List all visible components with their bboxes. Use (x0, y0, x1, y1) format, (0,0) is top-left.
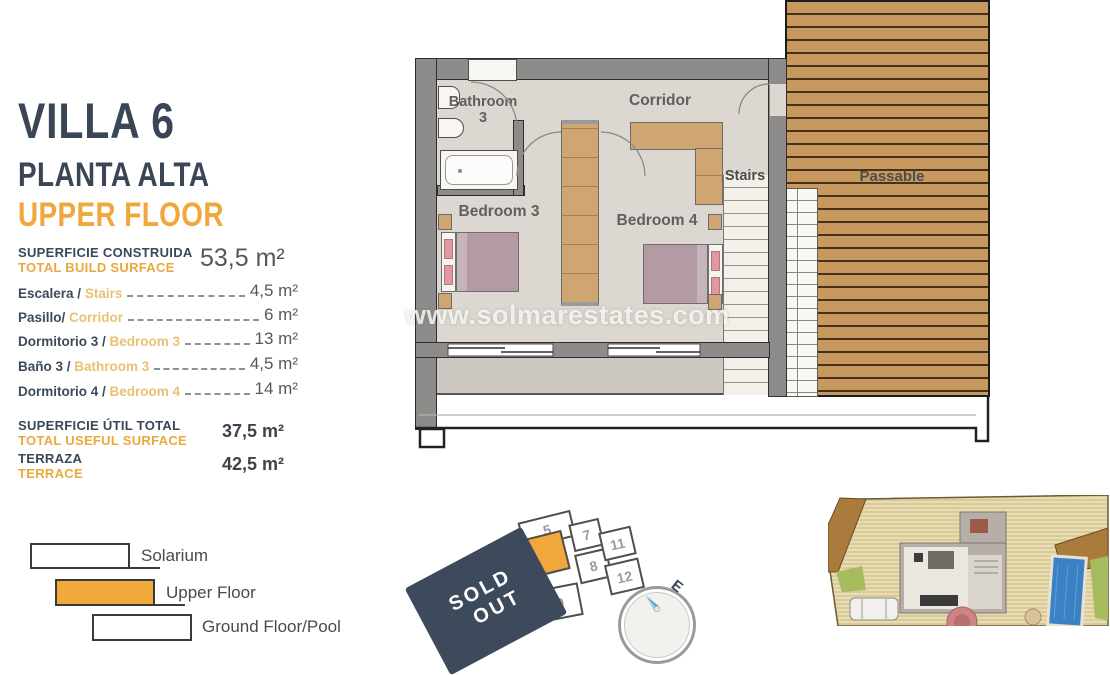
room-label-es: Escalera / (18, 286, 85, 301)
lower-terrace-strip (437, 358, 770, 395)
nightstand (708, 214, 722, 230)
terrace-header: TERRAZA TERRACE (18, 452, 218, 481)
room-label-en: Bedroom 3 (110, 334, 181, 349)
bathtub (440, 150, 518, 190)
parasol (1025, 609, 1041, 625)
bathroom-label-line2: 3 (443, 111, 523, 127)
bed-mattress (643, 244, 708, 304)
legend-label-ground-floor: Ground Floor/Pool (202, 617, 341, 637)
room-label-es: Dormitorio 4 / (18, 384, 110, 399)
useful-label-es: SUPERFICIE ÚTIL TOTAL (18, 419, 218, 434)
legend-swatch-ground-floor (92, 614, 192, 641)
outer-boundary (415, 397, 988, 441)
bed-fold (697, 245, 707, 303)
room-label-en: Corridor (69, 310, 123, 325)
room-label-bedroom3: Bedroom 3 (447, 203, 551, 220)
build-surface-label-es: SUPERFICIE CONSTRUIDA (18, 245, 208, 260)
villa-title: VILLA 6 (18, 92, 175, 150)
room-value: 14 m² (255, 379, 298, 399)
room-row-bedroom4: Dormitorio 4 / Bedroom 4 14 m² (18, 379, 298, 399)
floor-subtitle-es: PLANTA ALTA (18, 156, 209, 195)
room-label-en: Bathroom 3 (74, 359, 149, 374)
legend-swatch-upper-floor (55, 579, 155, 606)
boundary-corner-box (420, 429, 444, 447)
build-surface-label-en: TOTAL BUILD SURFACE (18, 260, 208, 275)
plot-cell-11: 11 (598, 526, 637, 562)
pillow (444, 265, 453, 285)
room-label-bedroom4: Bedroom 4 (605, 212, 709, 229)
wall-left (415, 58, 437, 430)
room-row-bedroom3: Dormitorio 3 / Bedroom 3 13 m² (18, 329, 298, 349)
wardrobe-middle (561, 120, 599, 306)
wardrobe-l-top (630, 122, 723, 150)
bed-fold (457, 233, 467, 291)
dotted-leader (185, 343, 250, 345)
watermark: www.solmarestates.com (405, 300, 805, 331)
floor-subtitle-en: UPPER FLOOR (18, 196, 224, 235)
useful-label-en: TOTAL USEFUL SURFACE (18, 434, 218, 449)
dotted-leader (127, 295, 244, 297)
room-label-es: Pasillo/ (18, 310, 69, 325)
useful-surface-value: 37,5 m² (222, 421, 284, 442)
car (850, 598, 898, 620)
terrace-value: 42,5 m² (222, 454, 284, 475)
swimming-pool (1048, 556, 1087, 626)
legend-tail (130, 567, 160, 569)
room-row-corridor: Pasillo/ Corridor 6 m² (18, 305, 298, 325)
room-label-stairs: Stairs (719, 169, 771, 185)
room-label-en: Bedroom 4 (110, 384, 181, 399)
room-label-es: Dormitorio 3 / (18, 334, 110, 349)
dotted-leader (128, 319, 259, 321)
pillow (444, 239, 453, 259)
build-surface-header: SUPERFICIE CONSTRUIDA TOTAL BUILD SURFAC… (18, 245, 208, 275)
floorplan: Bathroom 3 Corridor Bedroom 3 Bedroom 4 … (405, 0, 997, 460)
useful-surface-header: SUPERFICIE ÚTIL TOTAL TOTAL USEFUL SURFA… (18, 419, 218, 448)
room-value: 4,5 m² (250, 281, 298, 301)
bed-mattress (456, 232, 519, 292)
compass-needle (621, 589, 693, 629)
site-plan-thumbnail (828, 495, 1110, 626)
legend-tail (155, 604, 185, 606)
legend-label-solarium: Solarium (141, 546, 208, 566)
legend-swatch-solarium (30, 543, 130, 569)
room-row-bathroom3: Baño 3 / Bathroom 3 4,5 m² (18, 354, 298, 374)
bathtub-drain (458, 169, 462, 173)
dotted-leader (154, 368, 245, 370)
washing-machine (468, 59, 517, 81)
pillow (711, 251, 720, 271)
room-label-en: Stairs (85, 286, 123, 301)
bathroom-label-line1: Bathroom (443, 95, 523, 111)
staircase (723, 175, 768, 395)
room-label-corridor: Corridor (615, 92, 705, 109)
room-row-stairs: Escalera / Stairs 4,5 m² (18, 281, 298, 301)
dotted-leader (185, 393, 250, 395)
room-value: 4,5 m² (250, 354, 298, 374)
room-label-bathroom3: Bathroom 3 (443, 95, 523, 127)
door-opening-deck (770, 84, 786, 116)
terrace-label-en: TERRACE (18, 467, 218, 482)
room-label-passable: Passable (837, 169, 947, 186)
bed-bedroom3 (441, 232, 519, 292)
legend-label-upper-floor: Upper Floor (166, 583, 256, 603)
terrace-label-es: TERRAZA (18, 452, 218, 467)
bed-headboard (441, 232, 456, 292)
room-label-es: Baño 3 / (18, 359, 74, 374)
wall-bottom (415, 342, 770, 358)
build-surface-value: 53,5 m² (200, 244, 296, 273)
compass-icon (618, 586, 696, 664)
room-value: 6 m² (264, 305, 298, 325)
bathtub-inner (445, 155, 513, 185)
room-value: 13 m² (255, 329, 298, 349)
